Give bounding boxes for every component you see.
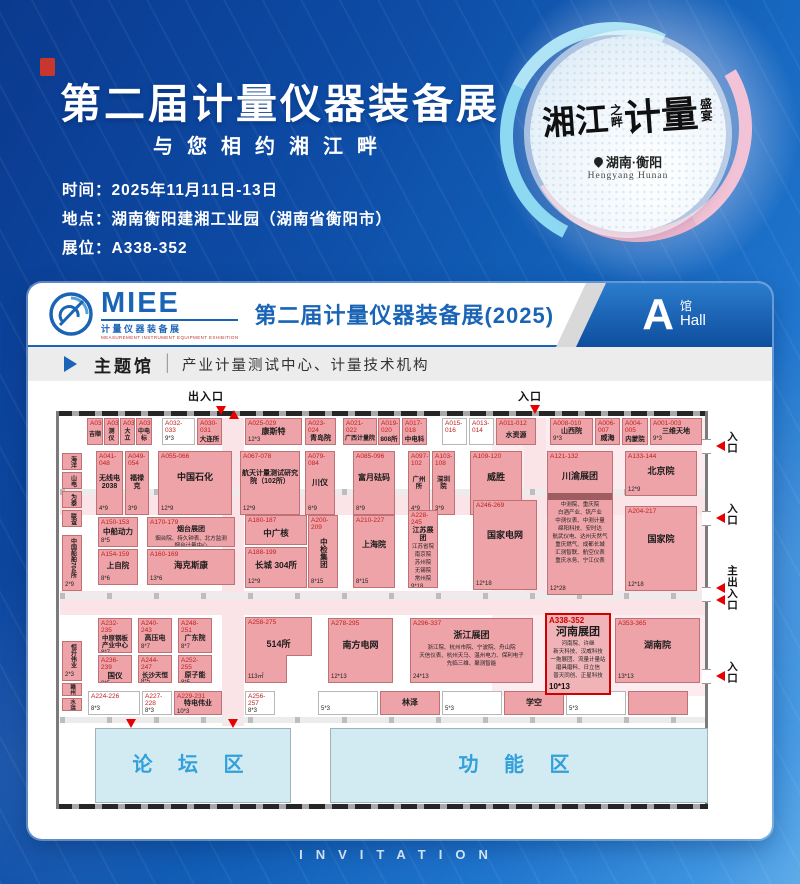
booth: A353-365湖南院13*13: [615, 618, 700, 683]
entrance-gap: [702, 669, 711, 684]
booth: A079-084川仪6*9: [305, 451, 335, 515]
entrance-label-right-main: 主出入口: [725, 565, 740, 611]
wall-left: [56, 411, 59, 809]
booth: A180-187中广核: [245, 515, 307, 545]
booth: 林泽: [380, 691, 440, 715]
badge-location-en: Hengyang Hunan: [588, 171, 669, 181]
miee-logo: MIEE 计量仪器装备展 MEASUREMENT INSTRUMENT EQUI…: [48, 289, 238, 340]
booth: [286, 655, 312, 683]
booth: A035中电标: [136, 418, 152, 445]
booth: A038吉顺: [87, 418, 103, 445]
booth: 赣州: [62, 683, 82, 696]
booth: A210-227上海院8*15: [353, 515, 395, 588]
booth: A256-2578*3: [245, 691, 275, 715]
booth: A170-179烟台展团烟台院、持久钟表、北方监测烟台计量中心13*5: [147, 517, 235, 547]
floor-plan: 出入口 入口 入口 入口 主出入口 入口 A038吉顺A037测仪A036大立A…: [56, 403, 716, 821]
entrance-label-top: 入口: [518, 388, 542, 404]
booth: A017-018中电科: [402, 418, 427, 445]
booth: A055-066中国石化12*9: [158, 451, 232, 515]
entrance-label-right-2: 入口: [725, 503, 740, 526]
miee-logo-text: MIEE 计量仪器装备展 MEASUREMENT INSTRUMENT EQUI…: [101, 289, 238, 340]
miee-logo-icon: [48, 291, 94, 337]
invitation-poster: { "header": { "title": "第二届计量仪器装备展", "su…: [0, 0, 800, 884]
booth: A067-078航天计量测试研究院（102所）12*9: [240, 451, 300, 515]
entrance-arrow-left: [711, 441, 725, 451]
booth: A240-243高压电8*7: [138, 618, 172, 653]
booth: A103-108深圳院3*9: [432, 451, 455, 515]
info-location: 地点：湖南衡阳建湘工业园（湖南省衡阳市）: [62, 205, 392, 234]
zone-area: 功 能 区: [330, 728, 708, 803]
badge-globe: 湘江 之畔 计量 盛宴 湖南·衡阳 Hengyang Hunan: [530, 36, 726, 232]
booth: A121-132川渝展团中测院、重庆院白酒产业、钒产业中测仪表、中测计量绵阳科技…: [547, 451, 613, 595]
wall-bottom: [56, 804, 708, 809]
booth: A032-0339*3: [162, 418, 195, 445]
booth: 为泰: [62, 491, 82, 508]
entrance-arrow-left: [711, 513, 725, 523]
entrance-label-right-1: 入口: [725, 431, 740, 454]
booth: A248-251广东院8*7: [178, 618, 212, 653]
entrance-gap: [702, 439, 711, 454]
floorplan-card: MIEE 计量仪器装备展 MEASUREMENT INSTRUMENT EQUI…: [28, 283, 772, 839]
booth: A188-199长城 304所12*9: [245, 547, 307, 588]
booth: A001-003三维天地9*3: [650, 418, 702, 445]
event-info: 时间：2025年11月11日-13日 地点：湖南衡阳建湘工业园（湖南省衡阳市） …: [62, 176, 392, 263]
entrance-arrow-left: [711, 583, 725, 593]
page-title: 第二届计量仪器装备展: [60, 70, 500, 130]
booth: A244-247长沙天恒8*5: [138, 655, 172, 683]
booth: A025-029康斯特12*3: [245, 418, 302, 445]
booth: A011-012水资源: [496, 418, 536, 445]
booth: A228-245江苏展团江苏省院南京院苏州院无锡院常州院9*18: [408, 510, 438, 588]
booth: A150-153中船动力8*5: [98, 517, 138, 547]
booth: 恒升伟业2*3: [62, 641, 82, 681]
booth: 山电: [62, 472, 82, 489]
booth: A200-209中检集团8*15: [308, 515, 338, 588]
booth: A224-2268*3: [88, 691, 140, 715]
booth: A023-024青岛院: [305, 418, 336, 445]
booth: A236-239国仪8*5: [98, 655, 132, 683]
card-header: MIEE 计量仪器装备展 MEASUREMENT INSTRUMENT EQUI…: [28, 283, 772, 347]
booth: A015-016: [442, 418, 467, 445]
zone-area: 论 坛 区: [95, 728, 291, 803]
booth: A037测仪: [104, 418, 119, 445]
booth: A019-020808所: [378, 418, 400, 445]
info-booth: 展位：A338-352: [62, 234, 392, 263]
booth: A227-2288*3: [142, 691, 172, 715]
booth: A246-269国家电网12*18: [473, 500, 537, 590]
entrance-label-top-main: 出入口: [188, 388, 224, 404]
entrance-arrow-up: [229, 405, 239, 419]
booth: A013-014: [469, 418, 494, 445]
booth: A154-159上自院8*6: [98, 549, 138, 585]
booth: A097-102广州所4*9: [408, 451, 430, 515]
booth: A021-022广西计量院: [343, 418, 377, 445]
entrance-arrow-left: [711, 595, 725, 605]
booth: 海洋: [62, 453, 82, 470]
booth: A204-217国家院12*18: [625, 506, 697, 591]
invitation-text: INVITATION: [0, 847, 800, 862]
theme-description: 产业计量测试中心、计量技术机构: [182, 354, 430, 375]
booth: A229-231特电伟业10*3: [174, 691, 222, 715]
theme-label: 主题馆: [94, 352, 154, 377]
booth: A160-169海克斯康13*6: [147, 549, 235, 585]
booth: A006-007威海: [595, 418, 620, 445]
entrance-arrow-left: [711, 671, 725, 681]
booth: 联谊: [62, 510, 82, 527]
booth: A252-255原子能8*5: [178, 655, 212, 683]
booth: A008-010山西院9*3: [550, 418, 593, 445]
highlighted-booth: A338-352河南展团河南院、许继新天科技、汉威科技一拖展团、流量计量站磨具磨…: [545, 613, 611, 695]
booth: A278-295南方电网12*13: [328, 618, 393, 683]
entrance-gap: [702, 511, 711, 526]
entrance-arrow-down: [530, 405, 540, 419]
booth: A030-031大连所: [197, 418, 222, 445]
entrance-label-right-3: 入口: [725, 661, 740, 684]
booth: A232-235中原钢板产业中心8*7: [98, 618, 132, 653]
booth: A296-337浙江展团浙江院、杭州市院、宁波院、舟山院天信仪表、杭州天马、温州…: [410, 618, 533, 683]
booth: [628, 691, 688, 715]
wall-top: [56, 411, 708, 416]
booth: A041-048无线电 20384*9: [96, 451, 123, 515]
badge-calligraphy: 湘江 之畔 计量 盛宴: [540, 82, 715, 148]
booth: 5*3: [318, 691, 378, 715]
booth: A049-054福禄克3*9: [125, 451, 149, 515]
pillar-row: [60, 717, 705, 723]
badge-location: 湖南·衡阳: [594, 152, 662, 171]
red-seal-mark: [40, 58, 55, 76]
booth: 5*3: [442, 691, 502, 715]
page-subtitle: 与您相约湘江畔: [62, 130, 482, 159]
booth: A133-144北京院12*9: [625, 451, 697, 496]
hall-badge: A 馆 Hall: [576, 283, 772, 347]
booth: 中国船舶704所2*9: [62, 535, 82, 591]
booth: 水运: [62, 698, 82, 711]
hall-letter: A: [642, 293, 674, 337]
card-title: 第二届计量仪器装备展(2025): [254, 298, 554, 330]
event-badge: 湘江 之畔 计量 盛宴 湖南·衡阳 Hengyang Hunan: [498, 16, 756, 252]
theme-bar: 主题馆 │ 产业计量测试中心、计量技术机构: [28, 347, 772, 381]
arrow-right-icon: [64, 356, 85, 372]
booth: A085-096富月砝码8*9: [353, 451, 395, 515]
entrance-gap: [702, 587, 711, 602]
info-time: 时间：2025年11月11日-13日: [62, 176, 392, 205]
booth: A036大立: [120, 418, 135, 445]
location-pin-icon: [592, 155, 605, 168]
booth: A004-005内蒙院: [622, 418, 648, 445]
